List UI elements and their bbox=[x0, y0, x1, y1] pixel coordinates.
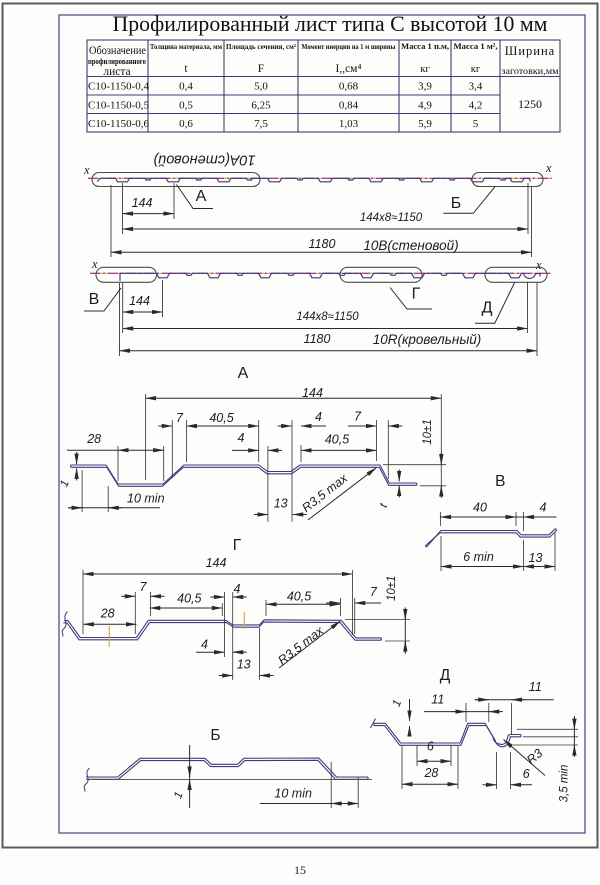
svg-text:4,2: 4,2 bbox=[469, 99, 483, 111]
svg-text:28: 28 bbox=[86, 432, 101, 446]
svg-text:1250: 1250 bbox=[518, 97, 542, 111]
svg-text:С10-1150-0,4: С10-1150-0,4 bbox=[88, 81, 150, 93]
svg-text:3,9: 3,9 bbox=[418, 81, 432, 93]
svg-text:4: 4 bbox=[201, 638, 208, 652]
svg-text:заготовки,мм: заготовки,мм bbox=[502, 67, 559, 77]
svg-text:13: 13 bbox=[237, 658, 251, 672]
svg-text:6 min: 6 min bbox=[463, 550, 494, 564]
svg-text:7: 7 bbox=[140, 580, 148, 594]
svg-text:0,84: 0,84 bbox=[339, 99, 359, 111]
svg-text:Момент инерции на 1 м ширины: Момент инерции на 1 м ширины bbox=[302, 43, 396, 51]
svg-text:Г: Г bbox=[233, 537, 242, 554]
svg-text:10 min: 10 min bbox=[274, 787, 312, 801]
svg-text:0,4: 0,4 bbox=[179, 81, 193, 93]
svg-text:кг: кг bbox=[471, 64, 481, 75]
svg-text:профилированного: профилированного bbox=[88, 56, 146, 66]
svg-text:7,5: 7,5 bbox=[254, 118, 268, 130]
svg-text:0,6: 0,6 bbox=[179, 118, 193, 130]
svg-text:Масса 1 п.м,: Масса 1 п.м, bbox=[401, 41, 449, 51]
svg-text:Масса 1 м²,: Масса 1 м², bbox=[454, 41, 498, 51]
svg-text:А: А bbox=[196, 188, 207, 205]
svg-text:1180: 1180 bbox=[309, 237, 336, 251]
svg-text:Толщина материала, мм: Толщина материала, мм bbox=[150, 43, 222, 51]
svg-text:144х8≈1150: 144х8≈1150 bbox=[360, 212, 423, 224]
svg-text:x: x bbox=[545, 161, 552, 175]
svg-text:3,5 min: 3,5 min bbox=[558, 765, 570, 803]
svg-text:Д: Д bbox=[482, 300, 493, 317]
svg-text:40,5: 40,5 bbox=[177, 592, 201, 606]
svg-text:40,5: 40,5 bbox=[209, 411, 233, 425]
svg-text:15: 15 bbox=[294, 863, 306, 877]
svg-text:13: 13 bbox=[529, 551, 543, 565]
svg-text:28: 28 bbox=[100, 607, 115, 621]
svg-text:40: 40 bbox=[473, 501, 487, 515]
svg-text:4: 4 bbox=[315, 410, 322, 424]
svg-text:4: 4 bbox=[540, 501, 547, 515]
svg-text:Б: Б bbox=[210, 727, 220, 744]
svg-text:x: x bbox=[83, 163, 90, 177]
svg-text:0,5: 0,5 bbox=[179, 99, 193, 111]
svg-text:40,5: 40,5 bbox=[325, 433, 349, 447]
svg-text:13: 13 bbox=[274, 497, 288, 511]
svg-text:144: 144 bbox=[302, 386, 323, 400]
svg-text:11: 11 bbox=[431, 693, 444, 707]
svg-text:144: 144 bbox=[132, 196, 153, 210]
svg-text:Б: Б bbox=[451, 195, 462, 212]
svg-text:5,9: 5,9 bbox=[418, 118, 432, 130]
svg-text:Г: Г bbox=[412, 286, 421, 303]
svg-text:С10-1150-0,5: С10-1150-0,5 bbox=[88, 99, 150, 111]
svg-text:7: 7 bbox=[370, 585, 378, 599]
svg-text:6,25: 6,25 bbox=[251, 99, 271, 111]
svg-text:28: 28 bbox=[423, 766, 438, 780]
svg-text:I,,см⁴: I,,см⁴ bbox=[336, 63, 362, 75]
svg-text:листа: листа bbox=[103, 66, 130, 78]
svg-text:10R(кровельный): 10R(кровельный) bbox=[373, 332, 482, 347]
svg-text:1,03: 1,03 bbox=[339, 118, 359, 130]
svg-text:4: 4 bbox=[234, 582, 241, 596]
svg-text:В: В bbox=[495, 473, 505, 490]
svg-text:А: А bbox=[238, 365, 249, 382]
svg-text:Д: Д bbox=[440, 667, 451, 684]
svg-text:x: x bbox=[535, 258, 542, 272]
svg-text:В: В bbox=[89, 291, 100, 308]
svg-text:144: 144 bbox=[206, 556, 227, 570]
svg-text:0,68: 0,68 bbox=[339, 81, 359, 93]
svg-text:4,9: 4,9 bbox=[418, 99, 432, 111]
svg-text:Профилированный лист типа С вы: Профилированный лист типа С высотой 10 м… bbox=[113, 12, 548, 36]
svg-text:7: 7 bbox=[354, 410, 362, 424]
svg-text:10±1: 10±1 bbox=[422, 419, 434, 445]
svg-text:10±1: 10±1 bbox=[386, 576, 398, 602]
svg-text:4: 4 bbox=[238, 431, 245, 445]
svg-text:x: x bbox=[91, 257, 98, 271]
svg-text:Площадь сечения, см²: Площадь сечения, см² bbox=[226, 43, 296, 51]
svg-text:10В(стеновой): 10В(стеновой) bbox=[363, 238, 458, 253]
svg-text:Ширина: Ширина bbox=[505, 44, 555, 58]
svg-text:10 min: 10 min bbox=[127, 492, 165, 506]
svg-text:6: 6 bbox=[427, 740, 434, 754]
svg-text:6: 6 bbox=[523, 767, 530, 781]
svg-text:5: 5 bbox=[473, 118, 479, 130]
svg-text:1180: 1180 bbox=[304, 332, 331, 346]
svg-text:3,4: 3,4 bbox=[469, 81, 483, 93]
svg-text:F: F bbox=[258, 63, 264, 75]
svg-text:40,5: 40,5 bbox=[287, 590, 311, 604]
svg-text:11: 11 bbox=[529, 680, 542, 694]
svg-text:кг: кг bbox=[420, 64, 430, 75]
svg-text:10А(стеновой): 10А(стеновой) bbox=[153, 152, 255, 168]
svg-text:5,0: 5,0 bbox=[254, 81, 268, 93]
svg-text:7: 7 bbox=[176, 411, 184, 425]
svg-text:144: 144 bbox=[129, 294, 150, 308]
svg-text:144х8≈1150: 144х8≈1150 bbox=[296, 311, 359, 323]
svg-text:С10-1150-0,6: С10-1150-0,6 bbox=[88, 118, 150, 130]
